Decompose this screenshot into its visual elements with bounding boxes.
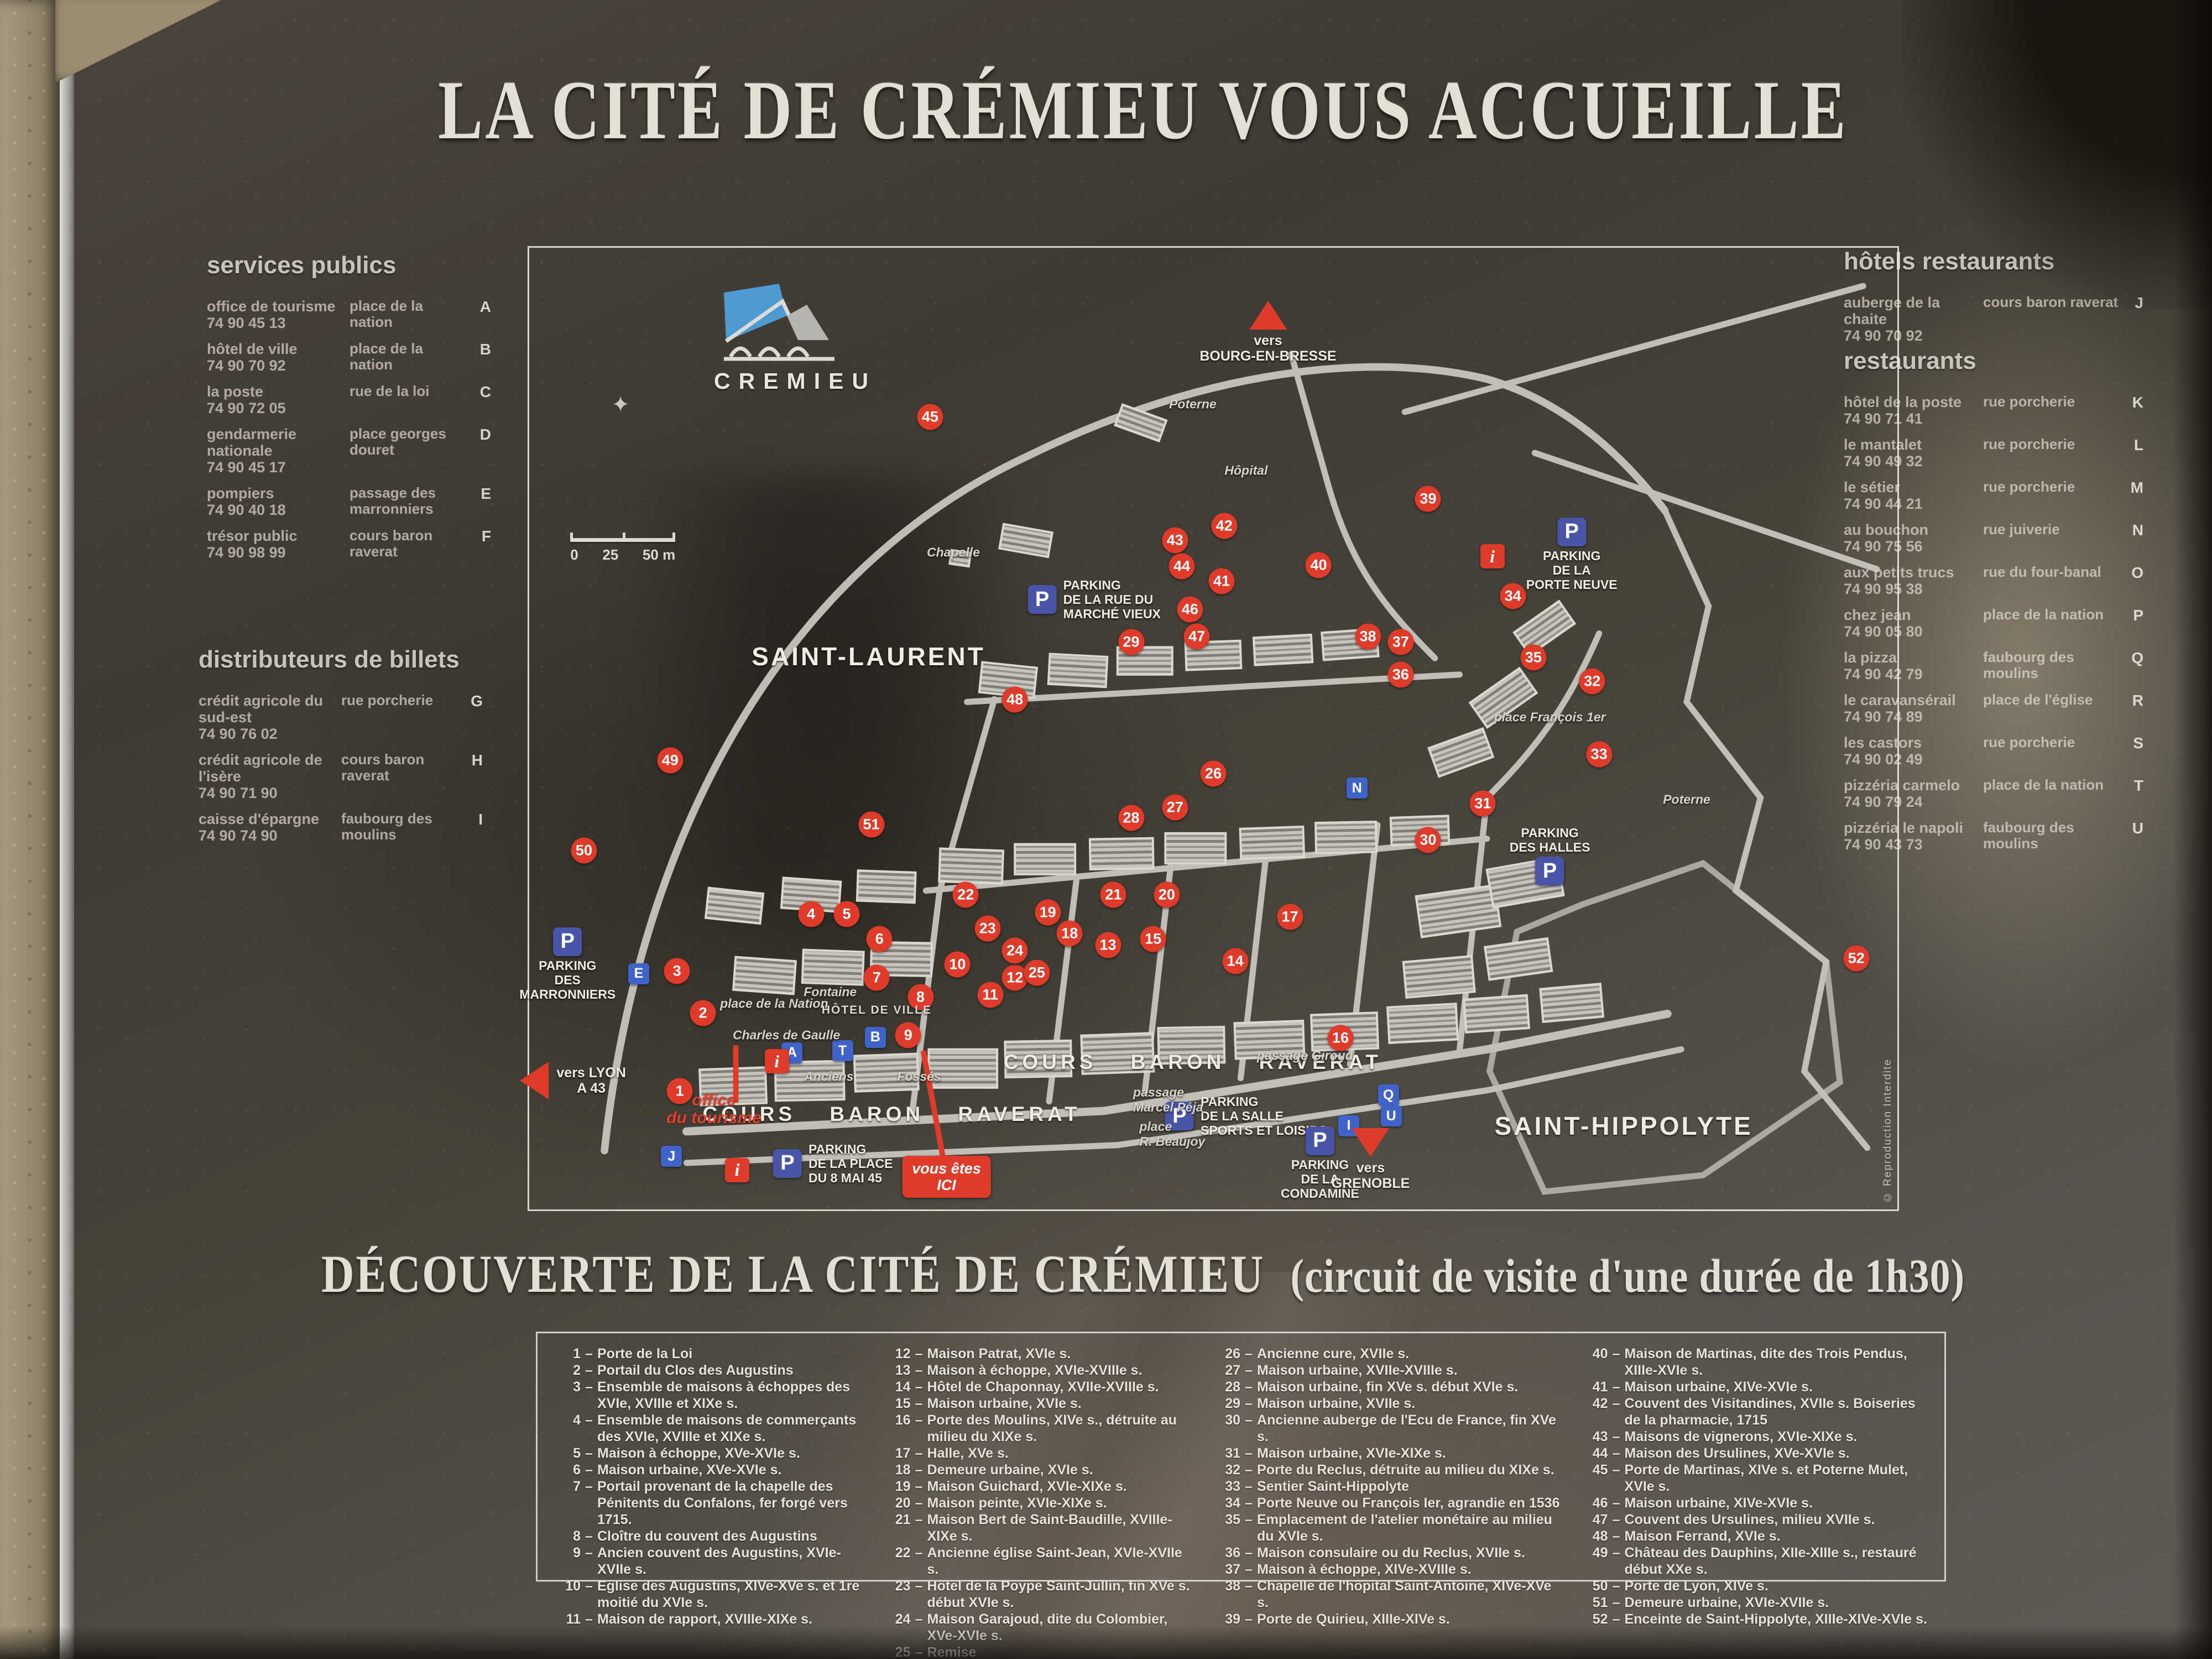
legend-item-number: 18 [882,1462,911,1478]
map-marker-27: 27 [1162,795,1188,821]
legend-item-text: Porte des Moulins, XIVe s., détruite au … [927,1412,1196,1445]
entry-location: rue porcherie [1983,394,2121,410]
entry-letter: C [467,383,491,401]
legend-item-dash: – [1608,1611,1625,1627]
legend-item-9: 9–Ancien couvent des Augustins, XVIe-XVI… [552,1545,865,1578]
legend-item-number: 44 [1579,1445,1608,1462]
legend-box: 1–Porte de la Loi2–Portail du Clos des A… [536,1332,1946,1582]
legend-item-dash: – [911,1611,927,1627]
compass-icon: ✦ [611,392,630,418]
map-marker-3: 3 [664,958,690,984]
legend-item-30: 30–Ancienne auberge de l'Ecu de France, … [1212,1412,1562,1445]
legend-item-number: 21 [882,1511,911,1528]
direction-up: vers BOURG-EN-BRESSE [1199,301,1336,364]
legend-item-18: 18–Demeure urbaine, XVIe s. [882,1462,1196,1478]
legend-item-dash: – [1240,1362,1257,1379]
entry-phone: 74 90 45 17 [207,459,349,476]
parking-marker: PPARKING DES HALLES [1510,826,1590,885]
legend-item-text: Maison urbaine, XIVe-XVIe s. [1625,1379,1930,1395]
discovery-heading-main: DÉCOUVERTE DE LA CITÉ DE CRÉMIEU [321,1244,1265,1303]
map-marker-10: 10 [945,951,971,977]
map-marker-23: 23 [974,916,1000,942]
legend-item-44: 44–Maison des Ursulines, XVe-XVIe s. [1579,1445,1930,1462]
map-label: Anciens [804,1070,853,1084]
legend-item-2: 2–Portail du Clos des Augustins [552,1362,865,1379]
legend-item-13: 13–Maison à échoppe, XVIe-XVIIIe s. [882,1362,1196,1379]
legend-item-dash: – [581,1611,597,1627]
you-are-here-badge: vous êtes ICI [902,1156,991,1198]
legend-item-dash: – [911,1495,927,1511]
legend-item-number: 19 [882,1478,911,1495]
legend-item-text: Maison de rapport, XVIIIe-XIXe s. [597,1611,865,1627]
legend-item-number: 34 [1212,1495,1240,1511]
entry-letter: S [2121,734,2143,752]
parking-label: PARKING DES MARRONNIERS [519,958,615,1001]
map-label: place François 1er [1494,709,1606,724]
direction-label: vers LYON A 43 [556,1065,626,1096]
legend-item-text: Portail du Clos des Augustins [597,1362,865,1379]
legend-item-34: 34–Porte Neuve ou François Ier, agrandie… [1212,1495,1562,1511]
entry-location: place de l'église [1983,692,2121,708]
atm-list: crédit agricole du sud-est74 90 76 02rue… [199,692,508,844]
photo-of-town-map-board: LA CITÉ DE CRÉMIEU VOUS ACCUEILLE servic… [0,0,2212,1659]
legend-item-38: 38–Chapelle de l'hôpital Saint-Antoine, … [1212,1578,1562,1611]
legend-item-dash: – [1240,1445,1257,1462]
entry-letter: B [467,341,491,358]
section-heading: services publics [207,252,517,279]
service-entry: trésor public74 90 98 99cours baron rave… [207,528,517,561]
service-entry: la poste74 90 72 05rue de la loiC [207,383,517,416]
map-marker-16: 16 [1328,1025,1354,1051]
entry-location: rue de la loi [349,383,467,399]
legend-item-12: 12–Maison Patrat, XVIe s. [882,1345,1196,1362]
legend-item-dash: – [1240,1345,1257,1362]
map-marker-40: 40 [1306,552,1332,578]
entry-name: crédit agricole de l'isère [199,752,341,785]
service-entry: hôtel de ville74 90 70 92place de la nat… [207,341,517,374]
entry-location: cours baron raverat [341,752,458,784]
service-entry: pompiers74 90 40 18passage des marronnie… [207,485,517,518]
entry-letter: K [2121,394,2143,411]
legend-item-6: 6–Maison urbaine, XVe-XVIe s. [552,1462,865,1478]
parking-marker: PPARKING DE LA RUE DU MARCHÉ VIEUX [1028,578,1161,621]
entry-phone: 74 90 70 92 [207,357,349,374]
map-label: place R. Beaujoy [1139,1119,1205,1149]
legend-column-3: 26–Ancienne cure, XVIIe s.27–Maison urba… [1212,1345,1562,1568]
map-label: SAINT-HIPPOLYTE [1495,1111,1753,1141]
entry-letter: I [458,811,483,828]
map-marker-21: 21 [1100,882,1126,908]
map-label: Charles de Gaulle [733,1028,840,1043]
legend-item-text: Maison de Martinas, dite des Trois Pendu… [1625,1345,1930,1379]
entry-letter: N [2121,521,2143,539]
direction-label: vers BOURG-EN-BRESSE [1199,333,1336,364]
parking-icon: P [773,1149,802,1178]
map-label: passage Giroud [1257,1048,1353,1063]
entry-location: rue porcherie [1983,479,2121,495]
entry-name: crédit agricole du sud-est [199,692,341,726]
legend-item-dash: – [1608,1379,1625,1395]
entry-location: cours baron raverat [349,528,467,560]
entry-letter: E [467,485,491,503]
entry-letter: Q [2121,649,2143,667]
board-title: LA CITÉ DE CRÉMIEU VOUS ACCUEILLE [288,62,1999,158]
legend-item-27: 27–Maison urbaine, XVIIe-XVIIIe s. [1212,1362,1562,1379]
legend-item-number: 14 [882,1379,911,1395]
legend-item-37: 37–Maison à échoppe, XIVe-XVIIIe s. [1212,1561,1562,1578]
map-marker-18: 18 [1057,920,1083,946]
map-copyright: © Reproduction Interdite [1882,1058,1894,1203]
legend-item-text: Ancienne cure, XVIIe s. [1257,1345,1562,1362]
map-marker-52: 52 [1843,946,1869,972]
map-marker-17: 17 [1277,904,1303,930]
legend-item-number: 13 [882,1362,911,1379]
map-label: SAINT-LAURENT [752,641,985,671]
legend-item-number: 12 [882,1345,911,1362]
legend-item-text: Maison Ferrand, XVIe s. [1625,1528,1930,1545]
entry-letter: T [2121,777,2143,795]
building-blocks [700,405,1603,1105]
map-marker-38: 38 [1355,623,1381,649]
legend-item-dash: – [1240,1545,1257,1561]
legend-column-2: 12–Maison Patrat, XVIe s.13–Maison à éch… [882,1345,1196,1568]
legend-item-number: 40 [1579,1345,1608,1362]
legend-item-dash: – [911,1578,927,1594]
legend-item-text: Maison urbaine, XIVe-XVIe s. [1625,1495,1930,1511]
map-marker-36: 36 [1387,662,1413,688]
entry-letter: R [2121,692,2143,709]
legend-item-number: 4 [552,1412,581,1428]
entry-name: la poste [207,383,349,400]
map-letter-J: J [661,1146,682,1167]
cremieu-logo: CREMIEU [714,281,855,394]
legend-item-dash: – [1608,1528,1625,1545]
legend-item-number: 31 [1212,1445,1240,1462]
entry-location: rue du four-banal [1983,564,2121,580]
map-marker-35: 35 [1520,644,1546,670]
legend-item-text: Porte de la Loi [597,1345,865,1362]
legend-item-text: Demeure urbaine, XVIe s. [927,1462,1196,1478]
legend-item-number: 38 [1212,1578,1240,1594]
entry-letter: F [467,528,491,545]
parking-icon: P [553,927,582,956]
legend-item-17: 17–Halle, XVe s. [882,1445,1196,1462]
legend-item-number: 15 [882,1395,911,1412]
legend-item-number: 2 [552,1362,581,1379]
entry-phone: 74 90 98 99 [207,544,349,561]
legend-item-dash: – [1240,1578,1257,1594]
legend-item-33: 33–Sentier Saint-Hippolyte [1212,1478,1562,1495]
scale-label: 50 m [643,546,675,564]
section-heading: distributeurs de billets [199,646,508,674]
stone-wall-left [0,0,60,1659]
scale-label: 0 [570,546,578,564]
map-marker-5: 5 [833,901,859,927]
legend-item-number: 35 [1212,1511,1240,1528]
legend-item-36: 36–Maison consulaire ou du Reclus, XVIIe… [1212,1545,1562,1561]
legend-item-text: Maison à échoppe, XVIe-XVIIIe s. [927,1362,1196,1379]
legend-item-26: 26–Ancienne cure, XVIIe s. [1212,1345,1562,1362]
legend-item-35: 35–Emplacement de l'atelier monétaire au… [1212,1511,1562,1545]
legend-item-dash: – [1240,1561,1257,1578]
map-label: Fontaine [804,984,857,999]
entry-location: place de la nation [1983,777,2121,793]
parking-marker: PPARKING DE LA PORTE NEUVE [1526,518,1618,592]
entry-location: place de la nation [349,341,467,373]
legend-item-text: Maison urbaine, fin XVe s. début XVIe s. [1257,1379,1562,1395]
legend-item-dash: – [581,1345,597,1362]
map-marker-31: 31 [1470,791,1496,817]
legend-item-text: Maison des Ursulines, XVe-XVIe s. [1625,1445,1930,1462]
map-marker-39: 39 [1415,486,1441,512]
legend-item-text: Demeure urbaine, XVIe-XVIIe s. [1625,1594,1930,1611]
entry-name-phone: gendarmerie nationale74 90 45 17 [207,426,349,476]
legend-item-text: Couvent des Visitandines, XVIIe s. Boise… [1625,1395,1930,1428]
map-marker-44: 44 [1169,553,1195,579]
legend-item-51: 51–Demeure urbaine, XVIe-XVIIe s. [1579,1594,1930,1611]
legend-item-dash: – [911,1545,927,1561]
legend-item-number: 11 [552,1611,581,1627]
legend-item-48: 48–Maison Ferrand, XVIe s. [1579,1528,1930,1545]
service-entry: gendarmerie nationale74 90 45 17place ge… [207,426,517,476]
distributeurs-section: distributeurs de billets crédit agricole… [199,646,508,853]
legend-item-text: Porte de Martinas, XIVe s. et Poterne Mu… [1625,1462,1930,1495]
legend-item-number: 24 [882,1611,911,1627]
legend-item-number: 29 [1212,1395,1240,1412]
map-label: Poterne [1663,792,1710,807]
legend-item-dash: – [1240,1511,1257,1528]
entry-location: place de la nation [349,298,467,330]
legend-item-text: Porte du Reclus, détruite au milieu du X… [1257,1462,1562,1478]
legend-item-number: 49 [1579,1545,1608,1561]
parking-label: PARKING DE LA RUE DU MARCHÉ VIEUX [1063,578,1161,621]
map-marker-19: 19 [1035,899,1061,925]
legend-item-dash: – [911,1462,927,1478]
legend-item-number: 28 [1212,1379,1240,1395]
legend-item-dash: – [1240,1395,1257,1412]
legend-item-number: 37 [1212,1561,1240,1578]
legend-item-number: 3 [552,1379,581,1395]
legend-item-number: 7 [552,1478,581,1495]
legend-column-4: 40–Maison de Martinas, dite des Trois Pe… [1579,1345,1930,1568]
entry-name-phone: pompiers74 90 40 18 [207,485,349,518]
entry-name-phone: crédit agricole du sud-est74 90 76 02 [199,692,341,742]
map-marker-49: 49 [657,747,683,773]
entry-location: rue juiverie [1983,521,2121,538]
legend-item-number: 47 [1579,1511,1608,1528]
legend-item-42: 42–Couvent des Visitandines, XVIIe s. Bo… [1579,1395,1930,1428]
legend-item-45: 45–Porte de Martinas, XIVe s. et Poterne… [1579,1462,1930,1495]
map-label: Chapelle [927,545,980,560]
legend-item-dash: – [581,1462,597,1478]
entry-letter: H [458,752,483,769]
legend-item-dash: – [581,1528,597,1545]
map-marker-15: 15 [1140,926,1166,952]
parking-label: PARKING DES HALLES [1510,826,1590,854]
legend-item-dash: – [1608,1495,1625,1511]
map-scale-bar: 02550 m [570,538,675,564]
parking-marker: PPARKING DE LA PLACE DU 8 MAI 45 [773,1142,893,1185]
legend-item-number: 30 [1212,1412,1240,1428]
legend-item-text: Maison urbaine, XVe-XVIe s. [597,1462,865,1478]
legend-item-1: 1–Porte de la Loi [552,1345,865,1362]
legend-item-dash: – [581,1379,597,1395]
legend-item-text: Porte de Lyon, XIVe s. [1625,1578,1930,1594]
legend-item-number: 20 [882,1495,911,1511]
legend-item-text: Hôtel de Chaponnay, XVIIe-XVIIIe s. [927,1379,1196,1395]
legend-item-number: 8 [552,1528,581,1545]
legend-item-number: 32 [1212,1462,1240,1478]
legend-item-50: 50–Porte de Lyon, XIVe s. [1579,1578,1930,1594]
legend-item-40: 40–Maison de Martinas, dite des Trois Pe… [1579,1345,1930,1379]
legend-item-10: 10–Eglise des Augustins, XIVe-XVe s. et … [552,1578,865,1611]
legend-item-dash: – [1240,1495,1257,1511]
legend-item-number: 41 [1579,1379,1608,1395]
entry-location: faubourg des moulins [1983,649,2121,681]
legend-item-number: 33 [1212,1478,1240,1495]
legend-item-23: 23–Hôtel de la Poype Saint-Jullin, fin X… [882,1578,1196,1611]
entry-name-phone: la poste74 90 72 05 [207,383,349,416]
parking-icon: P [1536,857,1564,885]
map-marker-45: 45 [917,404,943,430]
entry-phone: 74 90 71 90 [199,785,341,801]
map-marker-20: 20 [1154,882,1180,908]
legend-item-text: Emplacement de l'atelier monétaire au mi… [1257,1511,1562,1545]
entry-location: rue porcherie [1983,436,2121,452]
legend-item-number: 23 [882,1578,911,1594]
direction-arrow-up [1249,301,1287,330]
map-label: passage Marcel Péja [1133,1085,1203,1115]
discovery-heading-sub: (circuit de visite d'une durée de 1h30) [1290,1249,1965,1302]
map-marker-32: 32 [1579,669,1605,695]
city-map: CREMIEU ✦ 02550 m 1234567891011121314151… [528,246,1899,1211]
legend-item-dash: – [1608,1511,1625,1528]
entry-location: passage des marronniers [349,485,467,517]
services-list: office de tourisme74 90 45 13place de la… [207,298,517,561]
legend-item-text: Halle, XVe s. [927,1445,1196,1462]
map-marker-11: 11 [977,982,1003,1008]
entry-phone: 74 90 74 90 [199,827,341,844]
legend-column-1: 1–Porte de la Loi2–Portail du Clos des A… [552,1345,865,1568]
legend-item-text: Maison à échoppe, XIVe-XVIIIe s. [1257,1561,1562,1578]
legend-item-49: 49–Château des Dauphins, XIIe-XIIIe s., … [1579,1545,1930,1578]
legend-item-number: 1 [552,1345,581,1362]
map-marker-9: 9 [895,1022,921,1048]
legend-item-16: 16–Porte des Moulins, XIVe s., détruite … [882,1412,1196,1445]
legend-item-dash: – [911,1412,927,1428]
legend-item-number: 50 [1579,1578,1608,1594]
entry-letter: A [467,298,491,316]
legend-item-dash: – [1608,1345,1625,1362]
map-marker-33: 33 [1586,742,1612,768]
atm-entry: caisse d'épargne74 90 74 90faubourg des … [199,811,508,844]
legend-item-text: Portail provenant de la chapelle des Pén… [597,1478,865,1528]
legend-item-text: Maison urbaine, XVIe-XIXe s. [1257,1445,1562,1462]
legend-item-dash: – [911,1362,927,1379]
legend-item-number: 51 [1579,1594,1608,1611]
legend-item-39: 39–Porte de Quirieu, XIIIe-XIVe s. [1212,1611,1562,1627]
entry-letter: P [2121,607,2143,624]
atm-entry: crédit agricole de l'isère74 90 71 90cou… [199,752,508,801]
map-label: office du tourisme [666,1092,761,1127]
entry-letter: D [467,426,491,444]
legend-item-text: Cloître du couvent des Augustins [597,1528,865,1545]
legend-item-number: 48 [1579,1528,1608,1545]
map-marker-34: 34 [1500,583,1526,609]
legend-item-dash: – [1240,1412,1257,1428]
map-marker-50: 50 [571,838,597,864]
legend-item-dash: – [1240,1462,1257,1478]
legend-item-dash: – [1240,1478,1257,1495]
map-marker-25: 25 [1024,960,1050,986]
legend-item-number: 27 [1212,1362,1240,1379]
entry-name-phone: office de tourisme74 90 45 13 [207,298,349,331]
legend-item-number: 17 [882,1445,911,1462]
legend-item-text: Maison consulaire ou du Reclus, XVIIe s. [1257,1545,1562,1561]
legend-item-7: 7–Portail provenant de la chapelle des P… [552,1478,865,1528]
entry-phone: 74 90 40 18 [207,502,349,518]
map-marker-41: 41 [1208,568,1234,594]
tourist-info-icon: i [1480,544,1505,568]
map-marker-42: 42 [1211,513,1237,539]
entry-name-phone: caisse d'épargne74 90 74 90 [199,811,341,844]
legend-item-dash: – [1608,1395,1625,1412]
legend-item-dash: – [911,1395,927,1412]
legend-item-dash: – [1240,1611,1257,1627]
map-marker-51: 51 [858,812,884,838]
map-marker-2: 2 [690,1000,716,1026]
legend-item-text: Maison Patrat, XVIe s. [927,1345,1196,1362]
legend-item-text: Maison peinte, XVIe-XIXe s. [927,1495,1196,1511]
legend-item-dash: – [1240,1379,1257,1395]
legend-item-47: 47–Couvent des Ursulines, milieu XVIIe s… [1579,1511,1930,1528]
entry-phone: 74 90 45 13 [207,315,349,331]
entry-name: trésor public [207,528,349,544]
parking-icon: P [1028,585,1057,614]
legend-item-dash: – [1608,1578,1625,1594]
legend-item-text: Château des Dauphins, XIIe-XIIIe s., res… [1625,1545,1930,1578]
legend-item-text: Enceinte de Saint-Hippolyte, XIIIe-XIVe-… [1625,1611,1930,1627]
legend-item-text: Maison urbaine, XVIIe-XVIIIe s. [1257,1362,1562,1379]
legend-item-number: 42 [1579,1395,1608,1412]
legend-item-dash: – [1608,1462,1625,1478]
map-marker-13: 13 [1095,932,1121,958]
entry-location: place georges douret [349,426,467,458]
entry-location: faubourg des moulins [341,811,458,843]
cremieu-logo-text: CREMIEU [714,368,855,394]
legend-item-dash: – [581,1578,597,1594]
tourist-info-icon: i [725,1158,749,1182]
legend-item-number: 22 [882,1545,911,1561]
direction-down: vers GRENOBLE [1332,1128,1410,1191]
legend-item-11: 11–Maison de rapport, XVIIIe-XIXe s. [552,1611,865,1627]
legend-item-dash: – [911,1379,927,1395]
map-marker-43: 43 [1162,527,1188,553]
map-marker-24: 24 [1002,938,1028,964]
legend-item-text: Hôtel de la Poype Saint-Jullin, fin XVe … [927,1578,1196,1611]
map-marker-46: 46 [1177,596,1203,622]
parking-label: PARKING DE LA PORTE NEUVE [1526,549,1618,592]
parking-marker: PPARKING DES MARRONNIERS [519,927,615,1001]
legend-item-29: 29–Maison urbaine, XVIIe s. [1212,1395,1562,1412]
entry-location: rue porcherie [1983,734,2121,750]
legend-item-21: 21–Maison Bert de Saint-Baudille, XVIIIe… [882,1511,1196,1545]
entry-phone: 74 90 72 05 [207,400,349,416]
legend-item-text: Ancien couvent des Augustins, XVIe-XVIIe… [597,1545,865,1578]
legend-item-number: 52 [1579,1611,1608,1627]
legend-item-dash: – [911,1478,927,1495]
legend-item-text: Maison urbaine, XVIe s. [927,1395,1196,1412]
